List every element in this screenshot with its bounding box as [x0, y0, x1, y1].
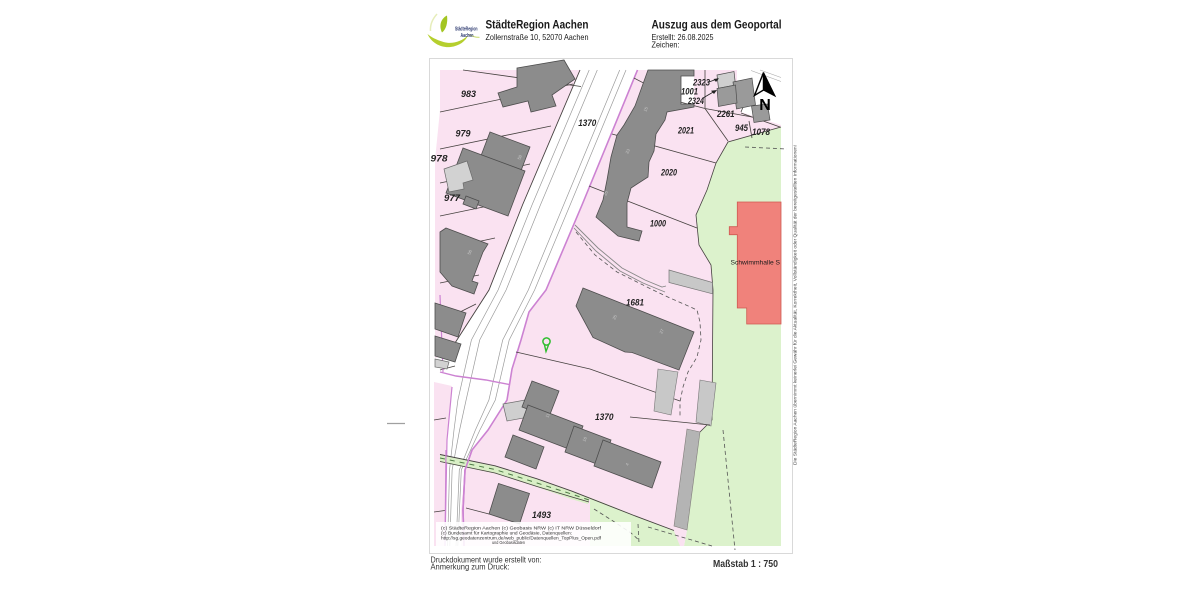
svg-text:StädteRegion Aachen: StädteRegion Aachen — [486, 17, 589, 31]
svg-text:979: 979 — [456, 129, 471, 139]
svg-text:1681: 1681 — [626, 298, 644, 308]
svg-text:1001: 1001 — [681, 87, 698, 97]
svg-text:1000: 1000 — [650, 219, 666, 229]
svg-text:StädteRegion: StädteRegion — [455, 27, 478, 33]
svg-text:977: 977 — [444, 193, 461, 203]
svg-text:Auszug aus dem Geoportal: Auszug aus dem Geoportal — [652, 17, 782, 31]
svg-text:Aachen: Aachen — [461, 33, 474, 39]
svg-text:Die StädteRegion Aachen überni: Die StädteRegion Aachen übernimmt keiner… — [793, 145, 798, 465]
svg-text:978: 978 — [431, 154, 448, 164]
svg-text:1370: 1370 — [578, 118, 596, 128]
svg-text:Maßstab 1 : 750: Maßstab 1 : 750 — [713, 559, 778, 570]
svg-text:983: 983 — [461, 89, 476, 99]
svg-text:1493: 1493 — [532, 510, 551, 520]
svg-text:und Geobasisdaten: und Geobasisdaten — [492, 540, 525, 545]
svg-text:Anmerkung zum Druck:: Anmerkung zum Druck: — [431, 563, 510, 572]
svg-text:1370: 1370 — [595, 412, 614, 422]
svg-text:Zollernstraße 10, 52070 Aachen: Zollernstraße 10, 52070 Aachen — [486, 32, 589, 42]
svg-text:2021: 2021 — [677, 126, 694, 136]
svg-text:Zeichen:: Zeichen: — [652, 39, 680, 49]
svg-text:Schwimmhalle S: Schwimmhalle S — [731, 260, 781, 267]
svg-text:2020: 2020 — [660, 168, 677, 178]
svg-text:1078: 1078 — [752, 127, 770, 137]
svg-text:2324: 2324 — [687, 96, 704, 106]
svg-text:945: 945 — [735, 123, 748, 133]
svg-text:2261: 2261 — [716, 109, 734, 119]
svg-text:N: N — [759, 97, 771, 114]
